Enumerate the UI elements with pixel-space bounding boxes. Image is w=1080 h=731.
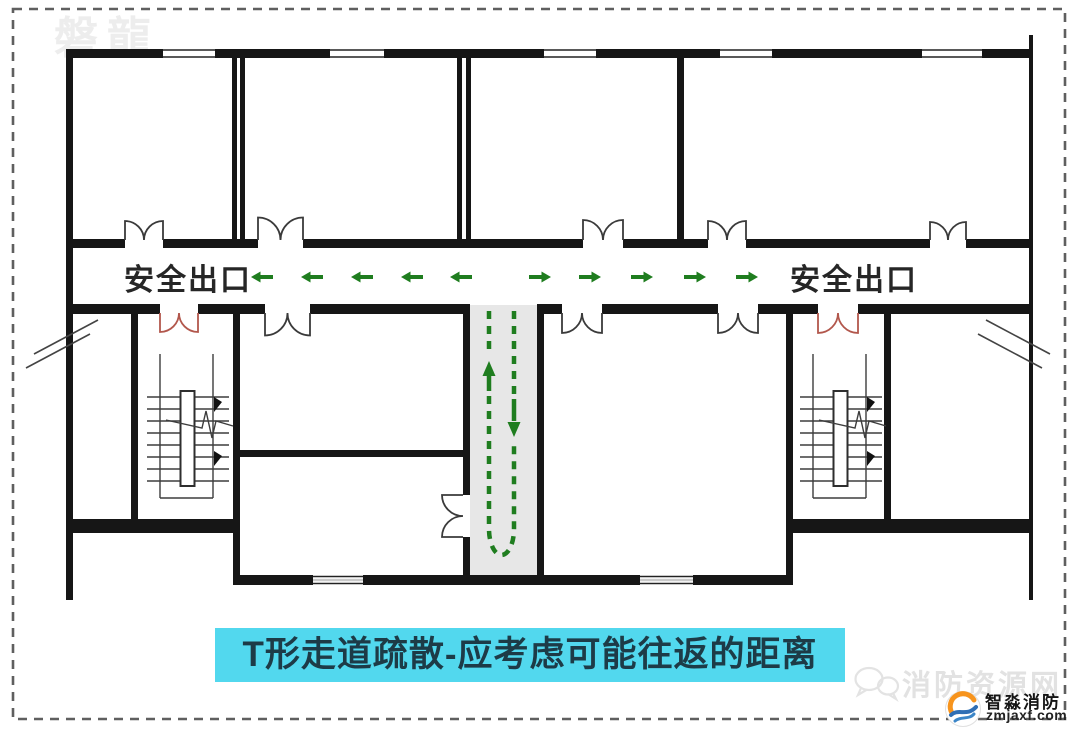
logo-domain: zmjaxf.com <box>986 707 1067 723</box>
vertical-corridor-floor <box>470 305 537 575</box>
corridor-arrows <box>251 272 758 283</box>
stairs-left <box>147 354 233 498</box>
walls-layer <box>66 35 1033 600</box>
zhimiao-logo-icon <box>944 690 982 728</box>
chat-bubbles-icon <box>852 664 902 702</box>
floor-plan <box>0 0 1080 731</box>
stairs-right <box>800 354 886 498</box>
exit-door-left <box>160 313 198 332</box>
caption-banner: T形走道疏散-应考虑可能往返的距离 <box>215 628 845 682</box>
exit-label-right: 安全出口 <box>790 263 918 299</box>
exit-label-left: 安全出口 <box>124 263 252 299</box>
page: { "page": { "background": "#ffffff", "bo… <box>0 0 1080 731</box>
exit-door-right <box>818 313 858 333</box>
